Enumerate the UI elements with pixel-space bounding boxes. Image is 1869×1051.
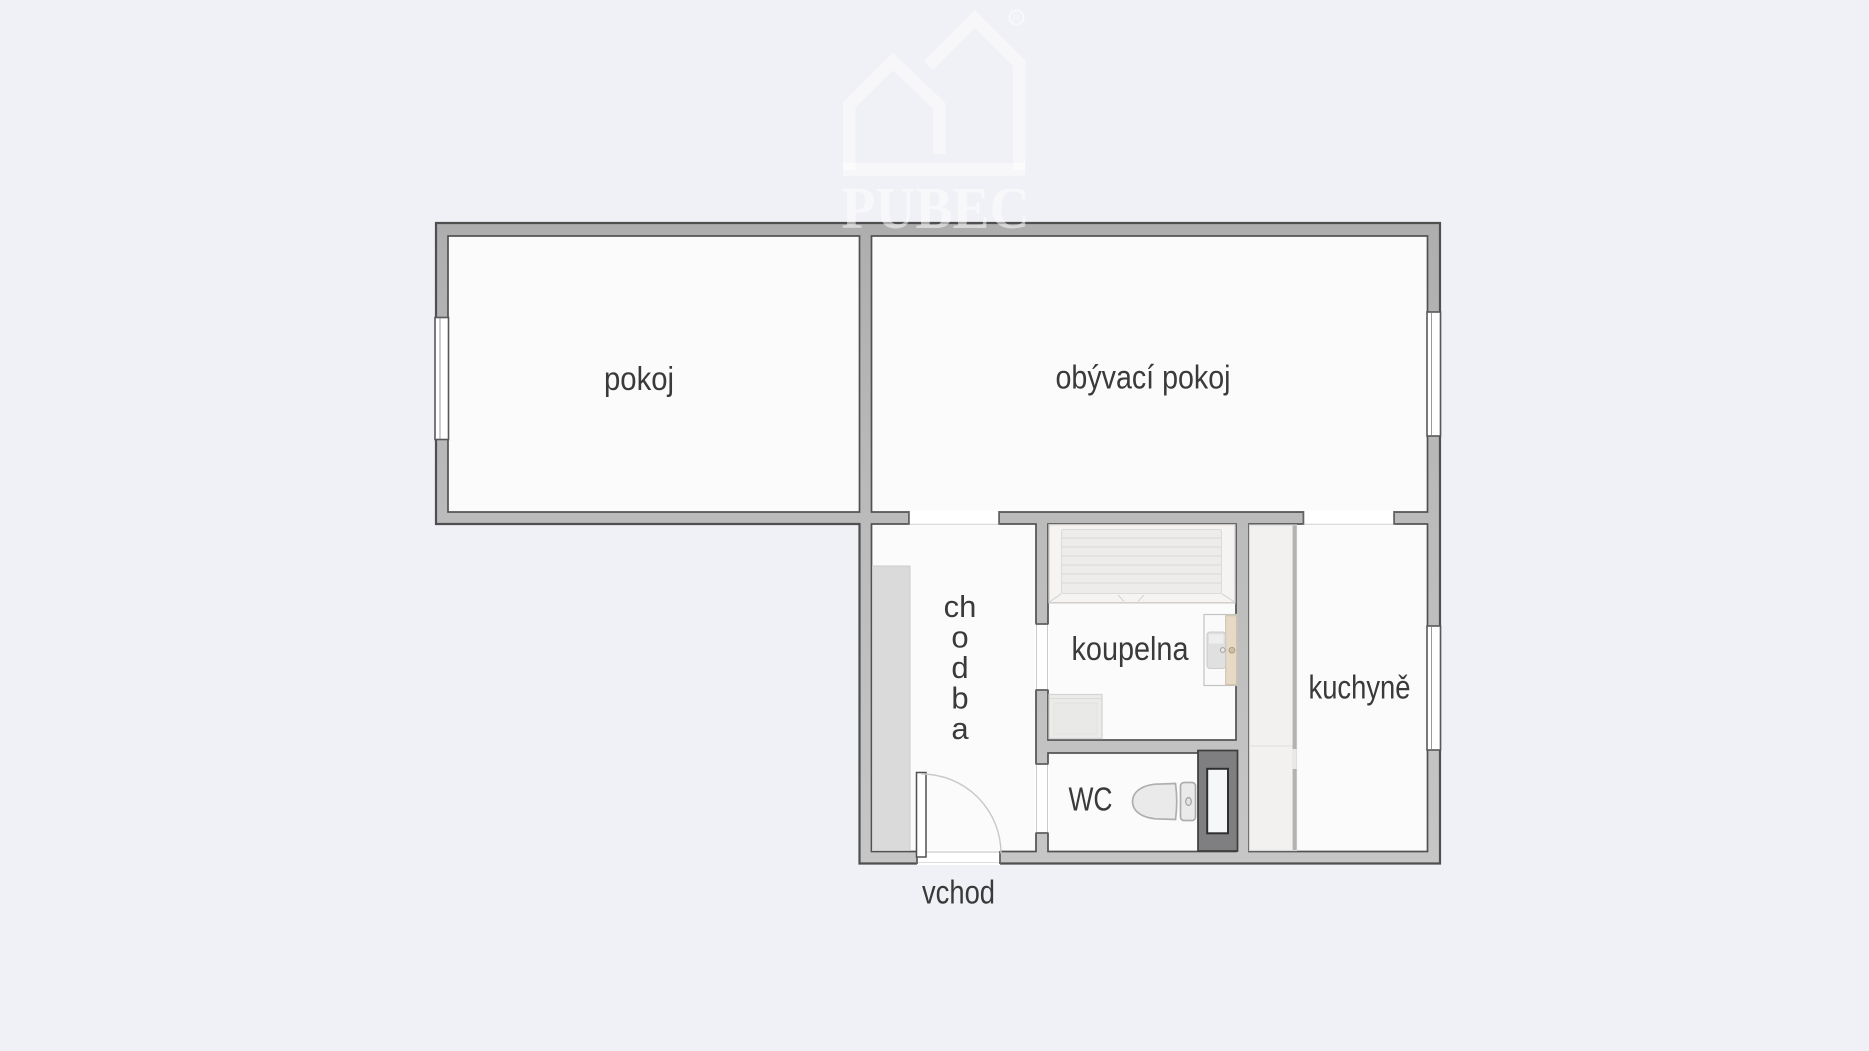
svg-text:pokoj: pokoj xyxy=(604,360,674,397)
svg-text:a: a xyxy=(951,711,969,746)
svg-text:obývací pokoj: obývací pokoj xyxy=(1056,359,1231,396)
svg-text:WC: WC xyxy=(1069,781,1113,818)
svg-text:PUBEC: PUBEC xyxy=(842,175,1030,241)
svg-text:kuchyně: kuchyně xyxy=(1309,669,1411,706)
svg-text:R: R xyxy=(1013,13,1021,25)
svg-text:koupelna: koupelna xyxy=(1072,630,1190,667)
svg-text:vchod: vchod xyxy=(922,874,995,911)
